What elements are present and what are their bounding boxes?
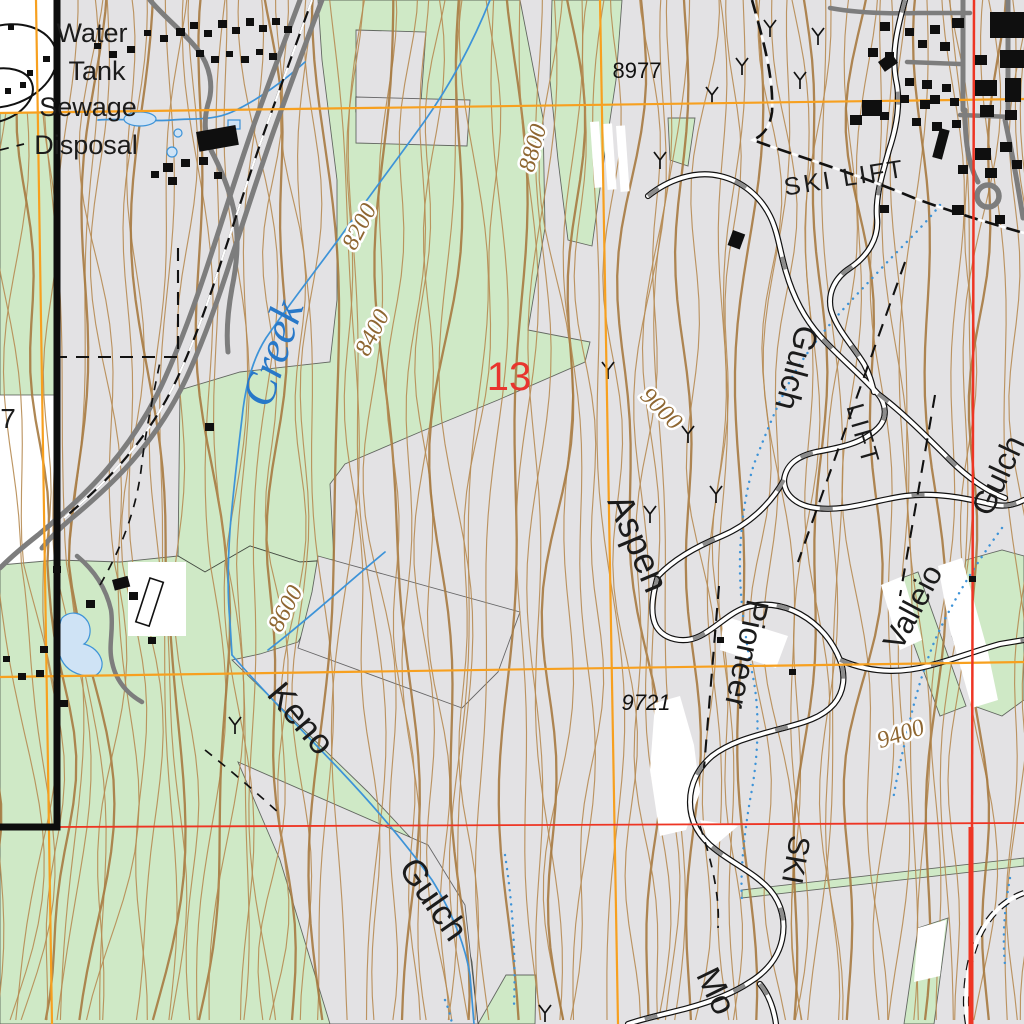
building	[975, 55, 987, 65]
building	[246, 18, 254, 26]
building	[868, 48, 878, 57]
building	[969, 576, 976, 582]
building	[8, 24, 14, 30]
map-label-water: Water	[56, 18, 127, 48]
building	[272, 18, 280, 25]
building	[905, 78, 914, 86]
building	[980, 105, 994, 117]
building	[129, 592, 138, 600]
building	[20, 82, 26, 88]
building	[952, 120, 961, 128]
building	[196, 50, 204, 57]
building	[912, 118, 921, 126]
building	[176, 28, 185, 36]
building	[1000, 142, 1012, 152]
building	[269, 53, 277, 60]
building	[53, 566, 61, 573]
building	[930, 95, 940, 104]
map-label-spot8977: 8977	[613, 58, 662, 83]
building	[148, 637, 156, 644]
building	[952, 205, 964, 215]
building	[950, 98, 959, 106]
building	[920, 100, 930, 109]
building	[995, 215, 1005, 224]
building	[27, 70, 33, 76]
map-label-section13: 13	[487, 355, 532, 399]
map-label-spot9721: 9721	[622, 690, 671, 715]
building	[259, 25, 267, 32]
building	[218, 20, 227, 28]
building	[127, 46, 135, 53]
map-label-tank: Tank	[68, 56, 126, 86]
building	[60, 700, 68, 707]
map-label-disposal: Disposal	[34, 130, 138, 160]
building	[256, 49, 263, 55]
building	[975, 148, 991, 160]
building	[40, 646, 48, 653]
building	[3, 656, 10, 662]
map-canvas: WaterTankSewageDisposal7Creek82008400860…	[0, 0, 1024, 1024]
building	[1012, 160, 1022, 169]
building	[717, 637, 724, 643]
building	[918, 40, 927, 48]
building	[850, 115, 862, 125]
building	[905, 28, 914, 36]
building	[942, 84, 951, 92]
building	[205, 423, 214, 431]
building	[990, 12, 1024, 38]
building	[880, 205, 889, 213]
building	[880, 22, 890, 31]
building	[226, 51, 233, 57]
building	[181, 159, 190, 167]
building	[241, 56, 249, 63]
building	[930, 25, 940, 34]
map-label-seven: 7	[0, 403, 16, 434]
building	[284, 26, 292, 33]
building	[1000, 50, 1024, 68]
building	[211, 56, 219, 63]
building	[5, 88, 11, 94]
building	[952, 18, 964, 28]
topo-map: WaterTankSewageDisposal7Creek82008400860…	[0, 0, 1024, 1024]
building	[958, 165, 968, 174]
building	[190, 22, 198, 29]
building	[985, 168, 997, 178]
building	[232, 27, 240, 34]
building	[151, 171, 159, 178]
building	[204, 30, 212, 37]
building	[922, 80, 932, 89]
building	[18, 673, 26, 680]
building	[975, 80, 997, 96]
building	[214, 172, 222, 179]
building	[144, 30, 151, 36]
building	[86, 600, 95, 608]
map-label-sewage: Sewage	[39, 92, 137, 122]
building	[940, 42, 950, 51]
building	[900, 95, 909, 103]
building	[163, 163, 173, 172]
building	[168, 177, 177, 185]
building	[199, 157, 208, 165]
building	[789, 669, 796, 675]
building	[160, 35, 168, 42]
building	[862, 100, 882, 116]
building	[36, 670, 44, 677]
building	[43, 56, 50, 62]
building	[1005, 110, 1017, 120]
building	[880, 112, 889, 120]
building	[1005, 78, 1021, 102]
